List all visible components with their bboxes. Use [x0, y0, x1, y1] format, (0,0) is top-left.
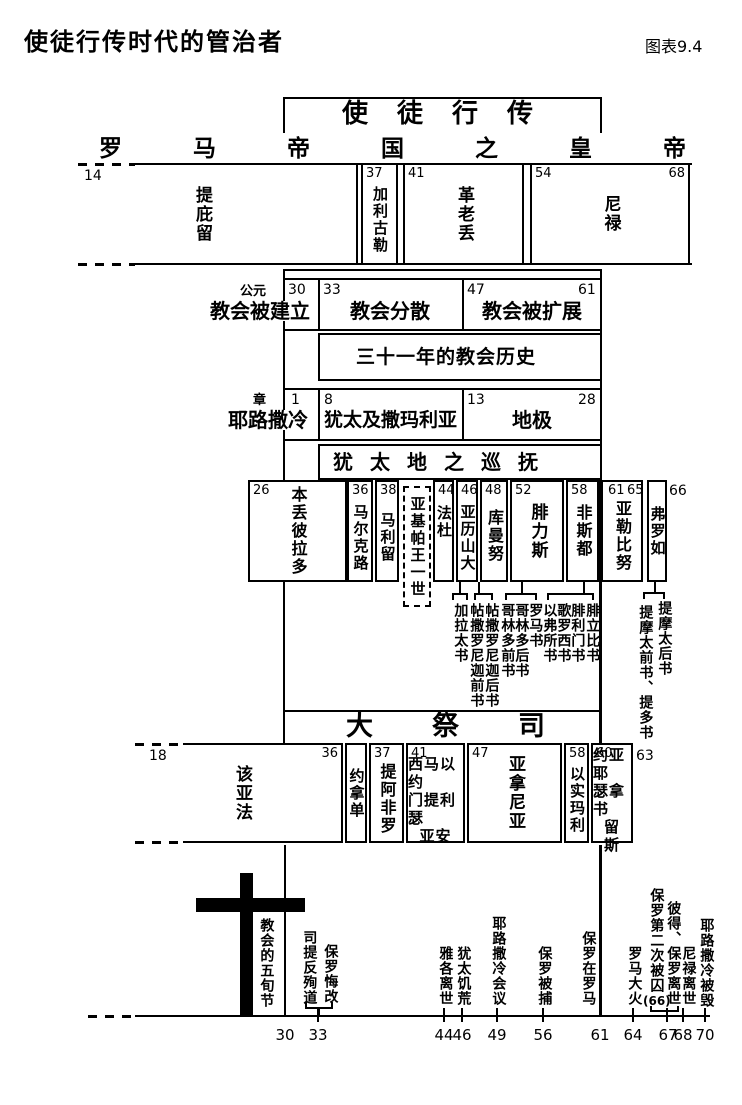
governor-name: 库曼努	[486, 509, 502, 563]
emperor-name: 革老丢	[455, 186, 472, 243]
priest-name: 提阿非罗	[379, 763, 395, 835]
governor-cell-marcellus: 36 马尔克路	[347, 480, 373, 582]
acts-title: 使徒行传	[342, 101, 562, 127]
emperors-heading: 罗马帝国之皇帝	[99, 138, 742, 161]
priest-year: 37	[374, 747, 391, 761]
governor-name: 马尔克路	[353, 504, 368, 572]
emperor-cell-caligula: 37 加利古勒	[361, 163, 398, 265]
axis-year: 33	[306, 1028, 330, 1043]
emperor-band-top-dashes	[78, 163, 135, 166]
year-30: 30	[288, 283, 306, 297]
chapter-divider-13	[462, 388, 464, 441]
axis-tick-49	[496, 1008, 498, 1022]
epistle-column: 加拉太书	[452, 603, 467, 663]
priests-start-year: 18	[149, 749, 167, 763]
event-column: 保罗在罗马	[580, 931, 595, 1006]
emperor-name: 加利古勒	[372, 186, 387, 254]
priest-year: 58	[569, 747, 586, 761]
axis-year: 61	[588, 1028, 612, 1043]
emperor-start-year: 14	[84, 169, 102, 183]
governor-year: 36	[352, 484, 369, 498]
chart-canvas: 使徒行传时代的管治者 图表9.4 使徒行传 罗马帝国之皇帝 14 提庇留 37 …	[0, 0, 742, 1105]
priest-name: 亚拿尼亚	[506, 755, 523, 831]
governor-name: 法杜	[436, 505, 451, 539]
era-label-ad: 公元	[240, 285, 266, 298]
event-column: 犹太饥荒	[455, 946, 470, 1006]
axis-tick-44	[443, 1008, 445, 1022]
pastoral-column: 提摩太前书、提多书	[637, 605, 652, 740]
axis-year: 49	[485, 1028, 509, 1043]
axis-year: 64	[621, 1028, 645, 1043]
governor-name: 弗罗如	[650, 506, 665, 557]
governor-name: 非斯都	[575, 504, 591, 558]
governor-cell-alexander: 46 亚历山大	[456, 480, 478, 582]
event-stephen: 司提反殉道	[301, 930, 316, 1005]
epistle-tick-thess	[478, 582, 480, 593]
priests-band-top-dashes	[135, 743, 183, 746]
stephen-paul-bracket	[305, 1002, 333, 1009]
timeline-61-governors	[599, 480, 603, 582]
priest-cell-jonathan: 约拿单	[345, 743, 367, 843]
governor-cell-marullus: 38 马利留	[375, 480, 399, 582]
priests-heading: 大祭司	[346, 713, 604, 740]
pastoral-column: 提摩太后书	[656, 601, 671, 676]
priest-name: 以实玛利	[569, 766, 584, 834]
governor-year: 58	[571, 484, 588, 498]
priests-year-outside: 63	[636, 749, 654, 763]
epistle-tick-corinth	[521, 582, 523, 593]
chapter-28: 28	[578, 393, 596, 407]
king-agrippa-dashed-box: 亚基帕王一世	[403, 486, 431, 607]
priest-names-group: 约亚耶 瑟拿书 留 斯	[593, 746, 631, 854]
epistle-bracket-1	[452, 593, 468, 600]
axis-tick-64	[632, 1008, 634, 1022]
epistle-column: 腓利门书	[569, 603, 584, 663]
church-expanded-label: 教会被扩展	[482, 301, 582, 321]
ends-of-earth-label: 地极	[512, 410, 552, 430]
event-column: 彼得、保罗离世	[665, 901, 680, 1006]
emperor-cell-tiberius: 提庇留	[135, 163, 358, 265]
page-title: 使徒行传时代的管治者	[24, 30, 284, 54]
axis-line	[135, 1015, 710, 1017]
governor-cell-festus: 58 非斯都	[566, 480, 599, 582]
epistle-bracket-2	[474, 593, 493, 600]
priest-name: 该亚法	[233, 765, 250, 822]
epistle-column: 帖撒罗尼迦前书	[468, 603, 483, 708]
priest-year: 41	[411, 747, 428, 761]
axis-year: 30	[273, 1028, 297, 1043]
church-era-divider-33	[318, 278, 320, 331]
axis-tick-70	[704, 1008, 706, 1022]
church-era-divider-47	[462, 278, 464, 331]
priest-cell-simon-group: 41 西马以约 门提利瑟 亚安	[406, 743, 465, 843]
pastoral-tick	[654, 582, 656, 592]
event-pentecost: 教会的五旬节	[258, 918, 273, 1008]
governor-cell-fadus: 44 法杜	[433, 480, 454, 582]
event-column: 耶路撒冷被毁	[698, 918, 713, 1008]
paul-peter-bracket	[650, 1006, 679, 1012]
priest-year-end: 36	[321, 747, 338, 761]
year-61: 61	[578, 283, 596, 297]
epistle-bracket-4	[547, 593, 594, 600]
emperor-name: 提庇留	[193, 186, 210, 243]
axis-year: 68	[671, 1028, 695, 1043]
emperor-band-bottom-dashes	[78, 263, 135, 266]
governor-year: 61	[608, 484, 625, 498]
epistle-column: 腓立比书	[584, 603, 599, 663]
axis-year: 70	[693, 1028, 717, 1043]
axis-tick-56	[542, 1008, 544, 1022]
governor-year2: 65	[627, 484, 644, 498]
axis-tick-68	[682, 1008, 684, 1022]
governor-name: 亚历山大	[460, 504, 475, 572]
acts-bracket-left-tick	[283, 97, 285, 133]
timeline-30-middle	[283, 582, 285, 743]
king-agrippa-name: 亚基帕王一世	[410, 496, 425, 598]
timeline-61-lower	[599, 845, 602, 1017]
axis-left-dashes	[88, 1015, 135, 1018]
figure-label: 图表9.4	[645, 39, 702, 55]
governor-year: 26	[253, 484, 270, 498]
priest-cell-ananias: 47 亚拿尼亚	[467, 743, 562, 843]
emperor-cell-nero: 54 68 尼禄	[530, 163, 690, 265]
governor-year: 44	[438, 484, 455, 498]
cross-horizontal-bar	[196, 898, 305, 912]
event-column: 雅各离世	[437, 946, 452, 1006]
priest-names-group: 西马以约 门提利瑟 亚安	[408, 755, 463, 845]
pastoral-bracket	[643, 592, 665, 599]
governor-cell-felix: 52 腓力斯	[510, 480, 564, 582]
chapter-divider-8	[318, 388, 320, 441]
governor-cell-florus: 弗罗如	[647, 480, 667, 582]
church-founded-label: 教会被建立	[210, 301, 310, 321]
history-label: 三十一年的教会历史	[356, 348, 536, 367]
priest-cell-theophilus: 37 提阿非罗	[369, 743, 404, 843]
priest-cell-joseph-group: 60 约亚耶 瑟拿书 留 斯	[591, 743, 633, 843]
axis-tick-46	[461, 1008, 463, 1022]
epistle-tick-galatians	[459, 582, 461, 593]
priests-band-bottom-dashes	[135, 841, 183, 844]
chapter-8: 8	[324, 393, 333, 407]
governor-year: 46	[461, 484, 478, 498]
event-paul-conversion: 保罗悔改	[322, 944, 337, 1004]
priest-name: 约拿单	[349, 768, 364, 819]
emperor-year: 41	[408, 167, 425, 181]
governor-name: 腓力斯	[529, 503, 546, 560]
emperor-cell-claudius: 41 革老丢	[403, 163, 524, 265]
governors-heading: 犹太地之巡抚	[333, 452, 555, 472]
axis-tick-33	[317, 1008, 319, 1022]
governor-cell-albinus: 61 65 亚勒比努	[601, 480, 643, 582]
cross-vertical-bar	[240, 873, 253, 1015]
event-column: 耶路撒冷会议	[490, 916, 505, 1006]
epistle-bracket-3	[505, 593, 537, 600]
emperor-name: 尼禄	[602, 195, 619, 233]
emperor-year-end: 68	[668, 167, 685, 181]
connector-line	[283, 269, 602, 271]
year-66-outside: 66	[669, 484, 687, 498]
priest-year: 47	[472, 747, 489, 761]
emperor-year: 37	[366, 167, 383, 181]
epistle-column: 帖撒罗尼迦后书	[483, 603, 498, 708]
judea-samaria-label: 犹太及撒玛利亚	[324, 411, 457, 430]
axis-tick-67	[666, 1008, 668, 1022]
event-column: 尼禄离世	[680, 946, 695, 1006]
timeline-30-lower	[284, 845, 286, 1015]
chapter-13: 13	[467, 393, 485, 407]
priest-cell-ishmael: 58 以实玛利	[564, 743, 589, 843]
chapter-1: 1	[291, 393, 300, 407]
church-scattered-label: 教会分散	[350, 301, 430, 321]
governor-cell-cumanus: 48 库曼努	[480, 480, 508, 582]
governor-name: 马利留	[380, 512, 395, 563]
axis-year: 56	[531, 1028, 555, 1043]
emperor-year: 54	[535, 167, 552, 181]
axis-year: 46	[450, 1028, 474, 1043]
event-column: 保罗第二次被囚	[648, 888, 663, 993]
governor-cell-pilate: 26 本丢彼拉多	[248, 480, 347, 582]
year-33: 33	[323, 283, 341, 297]
governor-name: 亚勒比努	[614, 500, 630, 572]
event-column: 罗马大火	[626, 946, 641, 1006]
governor-year: 38	[380, 484, 397, 498]
acts-bracket-right-tick	[600, 97, 602, 133]
era-label-chapter: 章	[253, 394, 266, 407]
priest-year: 60	[596, 747, 613, 761]
governor-year: 52	[515, 484, 532, 498]
governor-name: 本丢彼拉多	[290, 486, 306, 576]
governor-year: 48	[485, 484, 502, 498]
jerusalem-label: 耶路撒冷	[228, 410, 308, 430]
epistle-tick-prison	[583, 582, 585, 593]
event-column: 保罗被捕	[536, 946, 551, 1006]
priest-cell-caiaphas: 36 该亚法	[183, 743, 343, 843]
year-47: 47	[467, 283, 485, 297]
